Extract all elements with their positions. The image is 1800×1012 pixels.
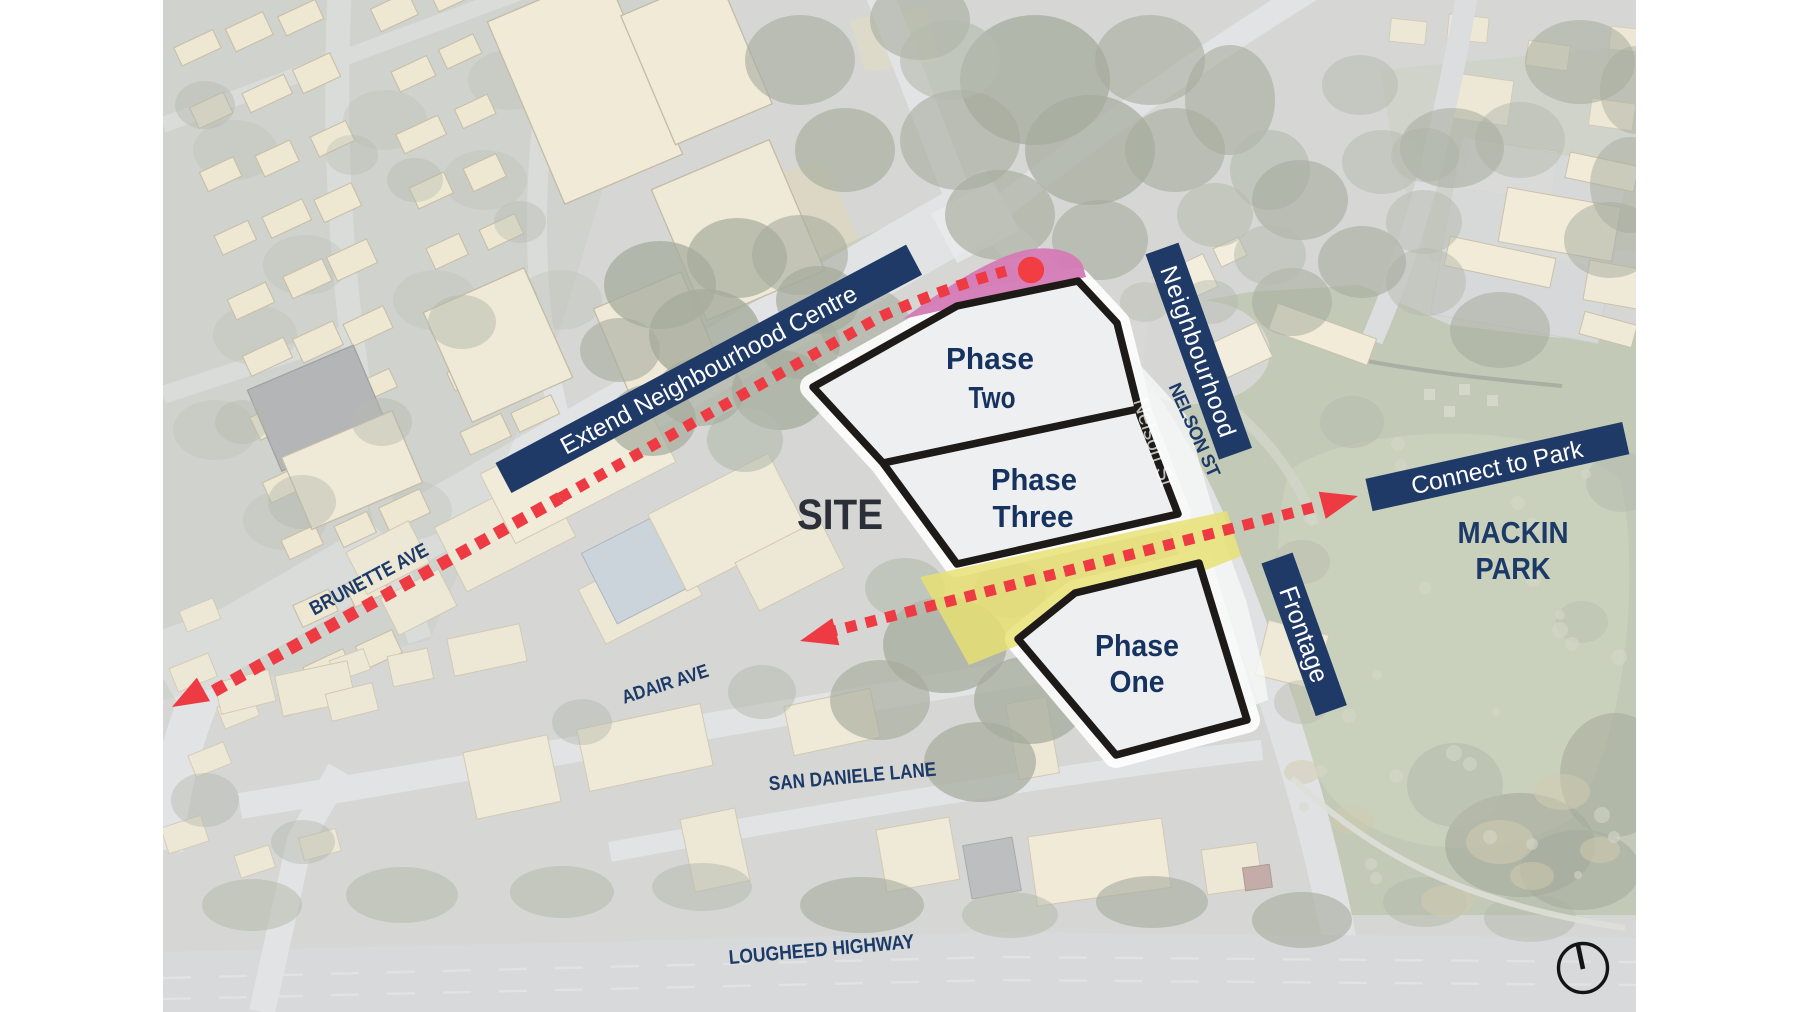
svg-text:MACKIN: MACKIN <box>1458 515 1569 550</box>
svg-text:Two: Two <box>969 380 1016 415</box>
svg-text:Three: Three <box>993 499 1074 534</box>
svg-text:Phase: Phase <box>1095 628 1179 663</box>
svg-text:PARK: PARK <box>1476 551 1552 586</box>
svg-text:SITE: SITE <box>797 491 883 539</box>
svg-text:Phase: Phase <box>946 341 1034 376</box>
svg-text:One: One <box>1110 664 1165 699</box>
svg-text:Phase: Phase <box>991 462 1077 497</box>
